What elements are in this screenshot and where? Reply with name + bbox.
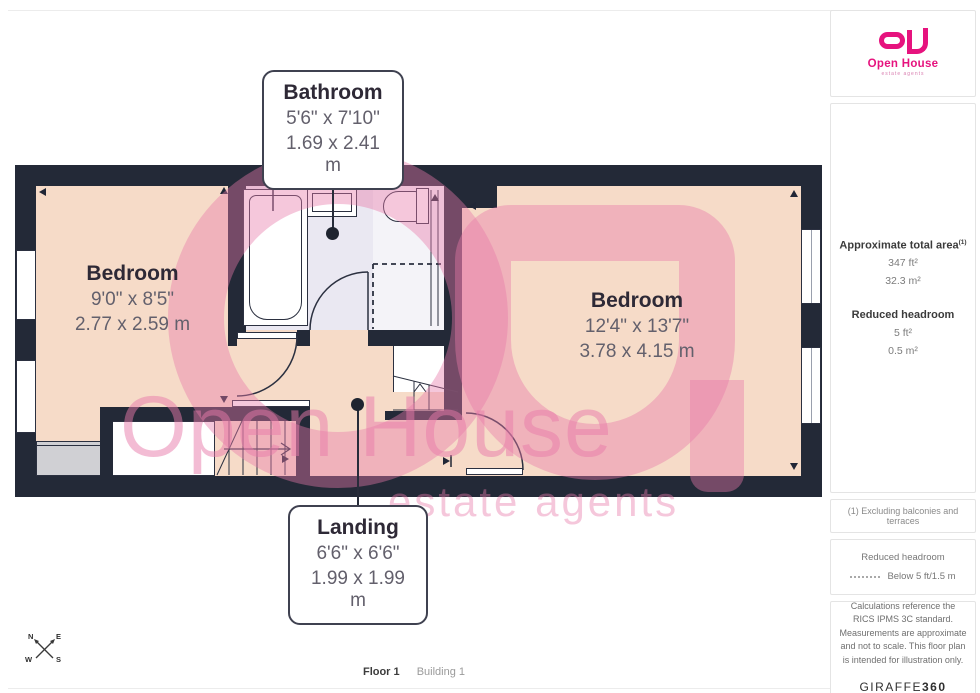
area-panel: Approximate total area(1) 347 ft² 32.3 m…	[830, 103, 976, 493]
floor-number: Floor 1	[363, 666, 400, 678]
reduced-headroom-heading: Reduced headroom	[852, 309, 955, 321]
compass-e: E	[56, 632, 61, 641]
total-area-m: 32.3 m²	[885, 275, 921, 287]
open-house-logo-icon	[879, 30, 928, 56]
floorplan-page: Open House estate agents Bathroom 5'6" x…	[0, 0, 980, 693]
giraffe360-wordmark: GIRAFFE360	[859, 678, 946, 693]
disclaimer-text: Calculations reference the RICS IPMS 3C …	[839, 600, 967, 668]
reduced-headroom-ft: 5 ft²	[894, 327, 912, 339]
compass-w: W	[25, 655, 32, 664]
legend-panel: Reduced headroom Below 5 ft/1.5 m	[830, 539, 976, 595]
reduced-headroom-m: 0.5 m²	[888, 345, 918, 357]
compass-n: N	[28, 632, 33, 641]
logo-panel: Open House estate agents	[830, 10, 976, 97]
exclusions-note: (1) Excluding balconies and terraces	[830, 499, 976, 533]
total-area-heading: Approximate total area(1)	[839, 239, 966, 252]
logo-tagline: estate agents	[881, 71, 924, 77]
floor-plan: Open House estate agents Bathroom 5'6" x…	[0, 0, 828, 693]
legend-value: Below 5 ft/1.5 m	[887, 571, 955, 582]
compass-s: S	[56, 655, 61, 664]
disclaimer-panel: Calculations reference the RICS IPMS 3C …	[830, 601, 976, 693]
building-number: Building 1	[417, 666, 465, 678]
logo-wordmark: Open House	[868, 58, 939, 70]
plan-linework	[0, 0, 828, 693]
floor-caption: Floor 1 Building 1	[0, 666, 828, 678]
dotted-line-swatch	[850, 576, 880, 578]
footnote-marker: (1)	[959, 239, 967, 246]
legend-heading: Reduced headroom	[861, 552, 944, 563]
total-area-ft: 347 ft²	[888, 257, 918, 269]
